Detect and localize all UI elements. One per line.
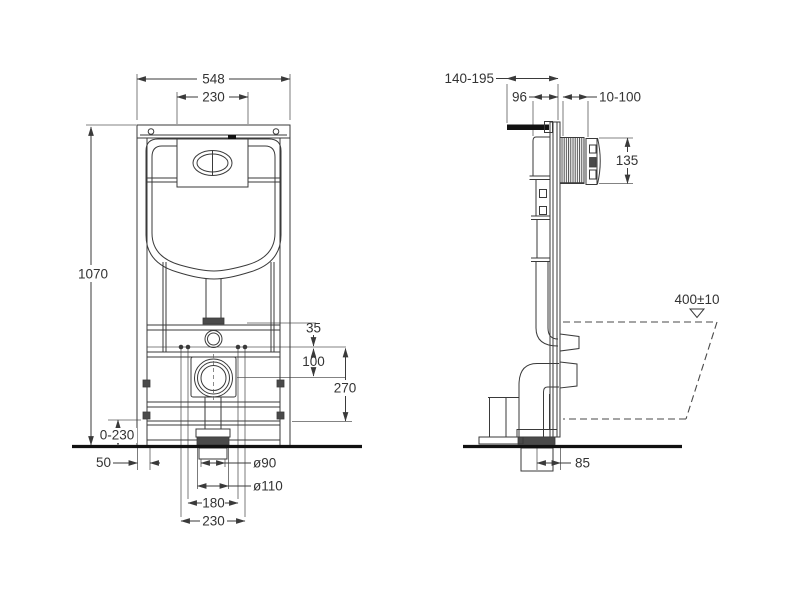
dim-access-opening-height: 135 [616,153,639,168]
dim-bolt-spacing-outer: 230 [202,514,225,529]
flush-plate [177,135,248,187]
dim-outlet-height: 270 [334,381,357,396]
dim-wall-thickness-range: 10-100 [599,90,641,105]
fixing-hole [277,380,284,387]
flush-plate-side [598,138,601,184]
fixing-hole [277,412,284,419]
dim-depth-range: 140-195 [444,71,494,86]
frame-upright [550,122,560,437]
dim-bolt-spacing-inner: 180 [202,496,225,511]
technical-drawing-canvas: 548 230 1070 0-230 50 ø90 [0,0,800,591]
pipe-clip [540,190,547,198]
installation-drawing: 548 230 1070 0-230 50 ø90 [0,0,800,591]
level-triangle-icon [690,309,704,318]
plate-clip [228,135,236,139]
dim-pipe-diameter: ø110 [253,479,283,494]
dim-drain-wall-offset: 85 [575,456,590,471]
front-view: 548 230 1070 0-230 50 ø90 [72,72,362,529]
dim-frame-depth: 96 [512,90,527,105]
dim-supply-offset: 35 [306,321,321,336]
frame-foot [479,398,523,445]
flush-pipe [203,279,224,324]
dim-leg-adjustment: 0-230 [100,428,135,443]
side-view: 400±10 140-195 96 10-100 135 [444,71,719,471]
water-supply-connection [205,331,222,348]
waste-outlet [191,354,236,402]
flush-pipe-connector [560,334,579,351]
bowl-height-marker: 400±10 [675,292,720,318]
waste-pipe-connector [560,362,577,388]
dim-bowl-top-height: 400±10 [675,292,720,307]
frame-screw-right [273,129,279,135]
frame-screw-left [148,129,154,135]
dim-outlet-drop: 100 [302,354,325,369]
pipe-clip [540,207,547,215]
fixing-hole [143,380,150,387]
dim-side-offset: 50 [96,455,111,470]
wc-bowl-outline [563,322,717,419]
dim-drain-diameter: ø90 [253,456,276,471]
wall-bracket [507,122,553,133]
fixing-hole [143,412,150,419]
dim-overall-height: 1070 [78,267,108,282]
drain-connector [196,397,230,459]
dim-overall-width: 548 [202,72,225,87]
bowl-connectors [560,334,579,388]
inspection-shaft [560,138,600,185]
dim-flush-plate-width: 230 [202,90,225,105]
cistern-side-profile [530,137,559,346]
